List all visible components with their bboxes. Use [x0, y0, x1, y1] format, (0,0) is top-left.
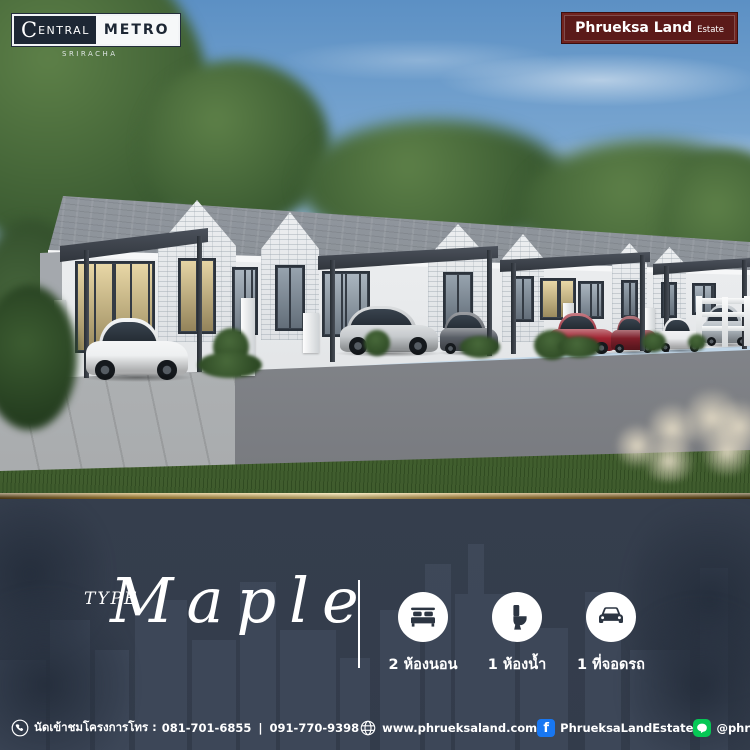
phone-number-1: 081-701-6855 — [162, 721, 252, 735]
feature-bathrooms: 1 ห้องน้ำ — [472, 592, 562, 676]
logo-initial: C — [21, 20, 37, 41]
carport-canopy — [318, 246, 498, 270]
carport-canopy — [500, 252, 650, 272]
shrub — [364, 330, 390, 356]
logo-text-metro: METRO — [96, 16, 178, 44]
shrub — [688, 334, 706, 350]
hero-photo: C ENTRAL METRO SRIRACHA Phrueksa Land Es… — [0, 0, 750, 493]
foreground-layer — [0, 0, 750, 493]
line-handle: @phrueksalandestate — [716, 721, 750, 735]
pampas-grass — [638, 440, 700, 482]
central-metro-box: C ENTRAL METRO — [12, 14, 180, 46]
facebook: f PhrueksaLandEstate — [537, 719, 693, 737]
badge-name: Phrueksa Land — [575, 20, 692, 36]
pampas-grass — [698, 428, 750, 476]
info-panel: TYPE Maple 2 ห้องนอน 1 ห้องน้ำ 1 ที่จอด — [0, 499, 750, 750]
toilet-icon — [492, 592, 542, 642]
website: www.phrueksaland.com — [359, 719, 537, 737]
phone-contact: นัดเข้าชมโครงการโทร : 081-701-6855 | 091… — [11, 719, 359, 737]
car — [86, 318, 188, 378]
carport-post — [197, 236, 202, 372]
feature-label: 1 ห้องน้ำ — [472, 653, 562, 676]
central-metro-logo: C ENTRAL METRO SRIRACHA — [12, 14, 180, 58]
gold-divider — [0, 493, 750, 499]
feature-bedrooms: 2 ห้องนอน — [378, 592, 468, 676]
feature-parking: 1 ที่จอดรถ — [566, 592, 656, 676]
contact-bar: นัดเข้าชมโครงการโทร : 081-701-6855 | 091… — [0, 719, 750, 737]
fence-pillar — [303, 313, 319, 353]
carport-canopy — [60, 228, 208, 262]
facebook-icon: f — [537, 719, 555, 737]
feature-list: 2 ห้องนอน 1 ห้องน้ำ 1 ที่จอดรถ — [378, 592, 656, 676]
website-url: www.phrueksaland.com — [382, 721, 537, 735]
divider-line — [358, 580, 360, 668]
white-fence — [744, 296, 750, 346]
car-icon — [586, 592, 636, 642]
carport-post — [511, 263, 516, 354]
globe-icon — [359, 719, 377, 737]
feature-label: 2 ห้องนอน — [378, 653, 468, 676]
facebook-handle: PhrueksaLandEstate — [560, 721, 693, 735]
shrub — [558, 336, 600, 358]
badge-suffix: Estate — [697, 25, 724, 35]
shrub — [460, 336, 500, 358]
logo-subtext: SRIRACHA — [62, 50, 180, 58]
logo-text-central: ENTRAL — [38, 24, 90, 37]
phone-icon — [11, 719, 29, 737]
phone-separator: | — [258, 721, 262, 735]
line: @phrueksalandestate — [693, 719, 750, 737]
white-fence — [722, 297, 728, 347]
shrub — [642, 332, 666, 352]
real-estate-ad: C ENTRAL METRO SRIRACHA Phrueksa Land Es… — [0, 0, 750, 750]
feature-label: 1 ที่จอดรถ — [566, 653, 656, 676]
line-icon — [693, 719, 711, 737]
phone-label: นัดเข้าชมโครงการโทร : — [34, 719, 157, 737]
phrueksa-land-badge: Phrueksa Land Estate — [562, 13, 737, 43]
shrub — [198, 352, 262, 378]
bed-icon — [398, 592, 448, 642]
type-name: Maple — [110, 567, 372, 635]
carport-post — [330, 260, 335, 362]
phone-number-2: 091-770-9398 — [270, 721, 360, 735]
